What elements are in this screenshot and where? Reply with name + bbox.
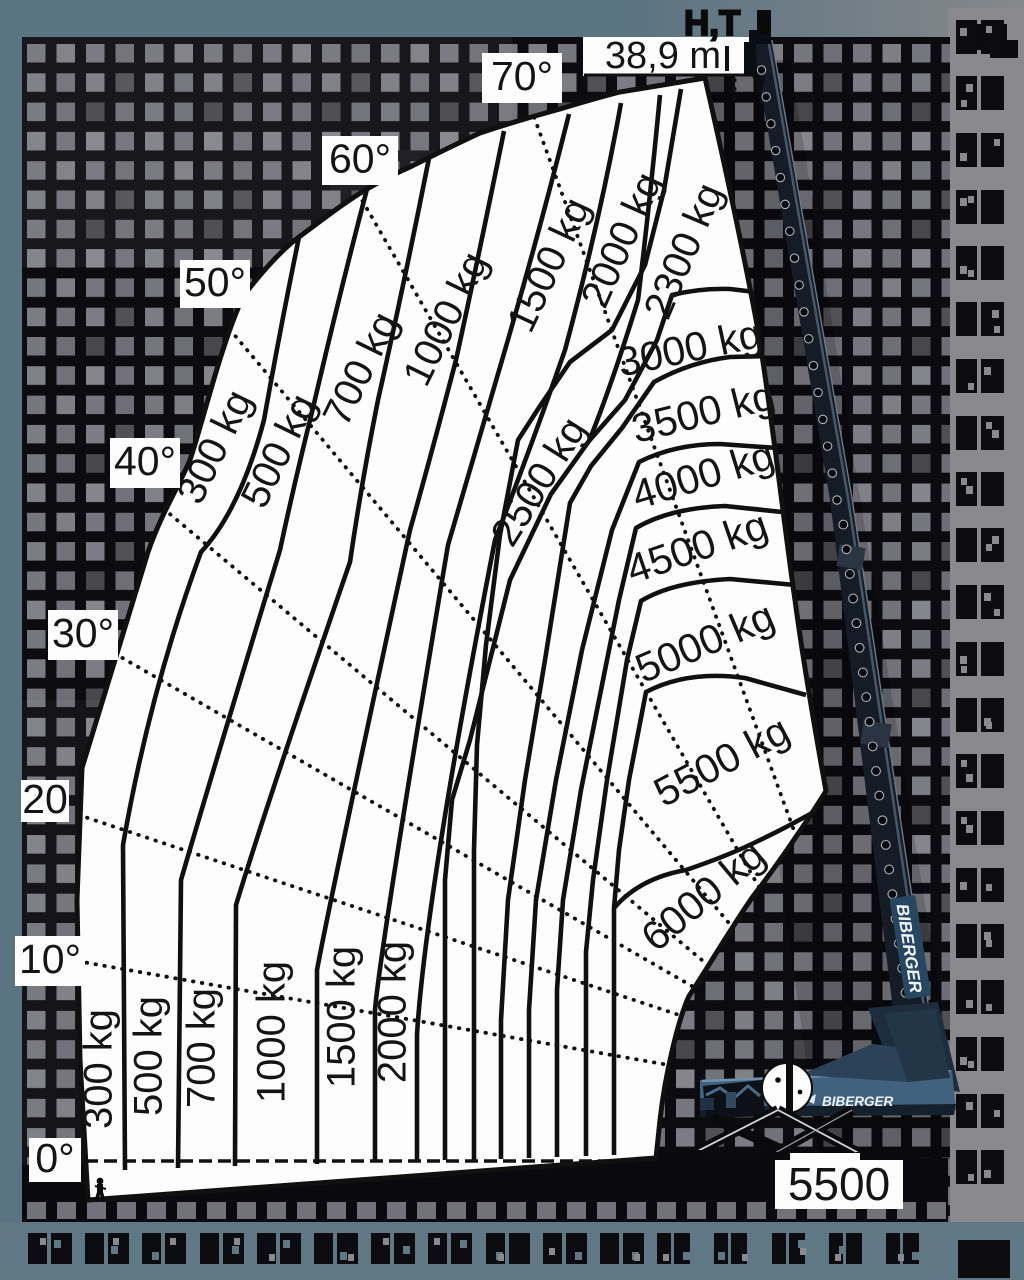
svg-text:2000 kg: 2000 kg — [371, 941, 415, 1083]
svg-text:500 kg: 500 kg — [127, 996, 171, 1116]
svg-text:70°: 70° — [491, 53, 553, 99]
svg-text:50°: 50° — [184, 259, 246, 305]
svg-text:700 kg: 700 kg — [180, 988, 224, 1108]
svg-text:1000 kg: 1000 kg — [250, 961, 294, 1103]
svg-text:40°: 40° — [114, 438, 176, 484]
svg-text:H,T: H,T — [684, 4, 740, 43]
svg-text:5500: 5500 — [788, 1158, 890, 1210]
svg-text:1500 kg: 1500 kg — [320, 946, 364, 1088]
svg-text:0°: 0° — [35, 1135, 74, 1181]
svg-text:BIBERGER: BIBERGER — [822, 1094, 894, 1109]
svg-text:10°: 10° — [19, 936, 81, 982]
svg-text:60°: 60° — [329, 135, 391, 181]
svg-text:300 kg: 300 kg — [77, 1009, 121, 1129]
svg-text:20: 20 — [22, 776, 68, 822]
svg-text:30°: 30° — [52, 610, 114, 656]
